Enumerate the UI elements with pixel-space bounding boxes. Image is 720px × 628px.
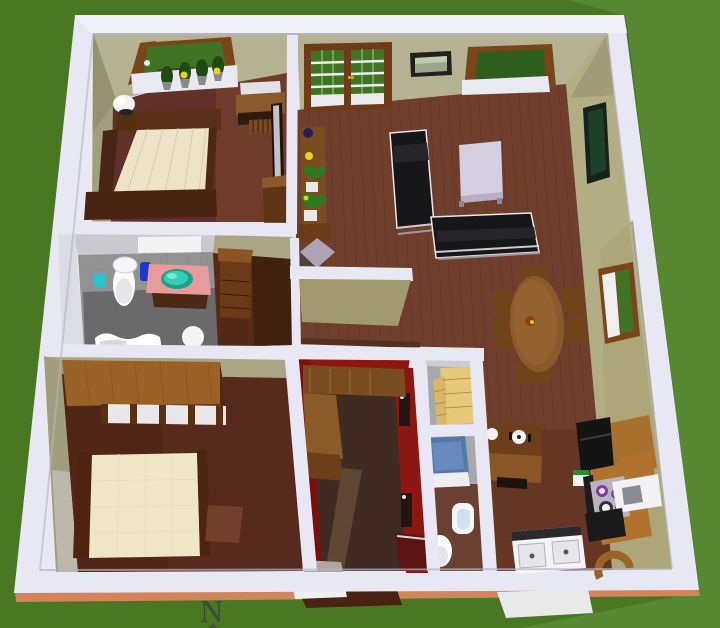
svg-text:N: N: [200, 593, 223, 628]
